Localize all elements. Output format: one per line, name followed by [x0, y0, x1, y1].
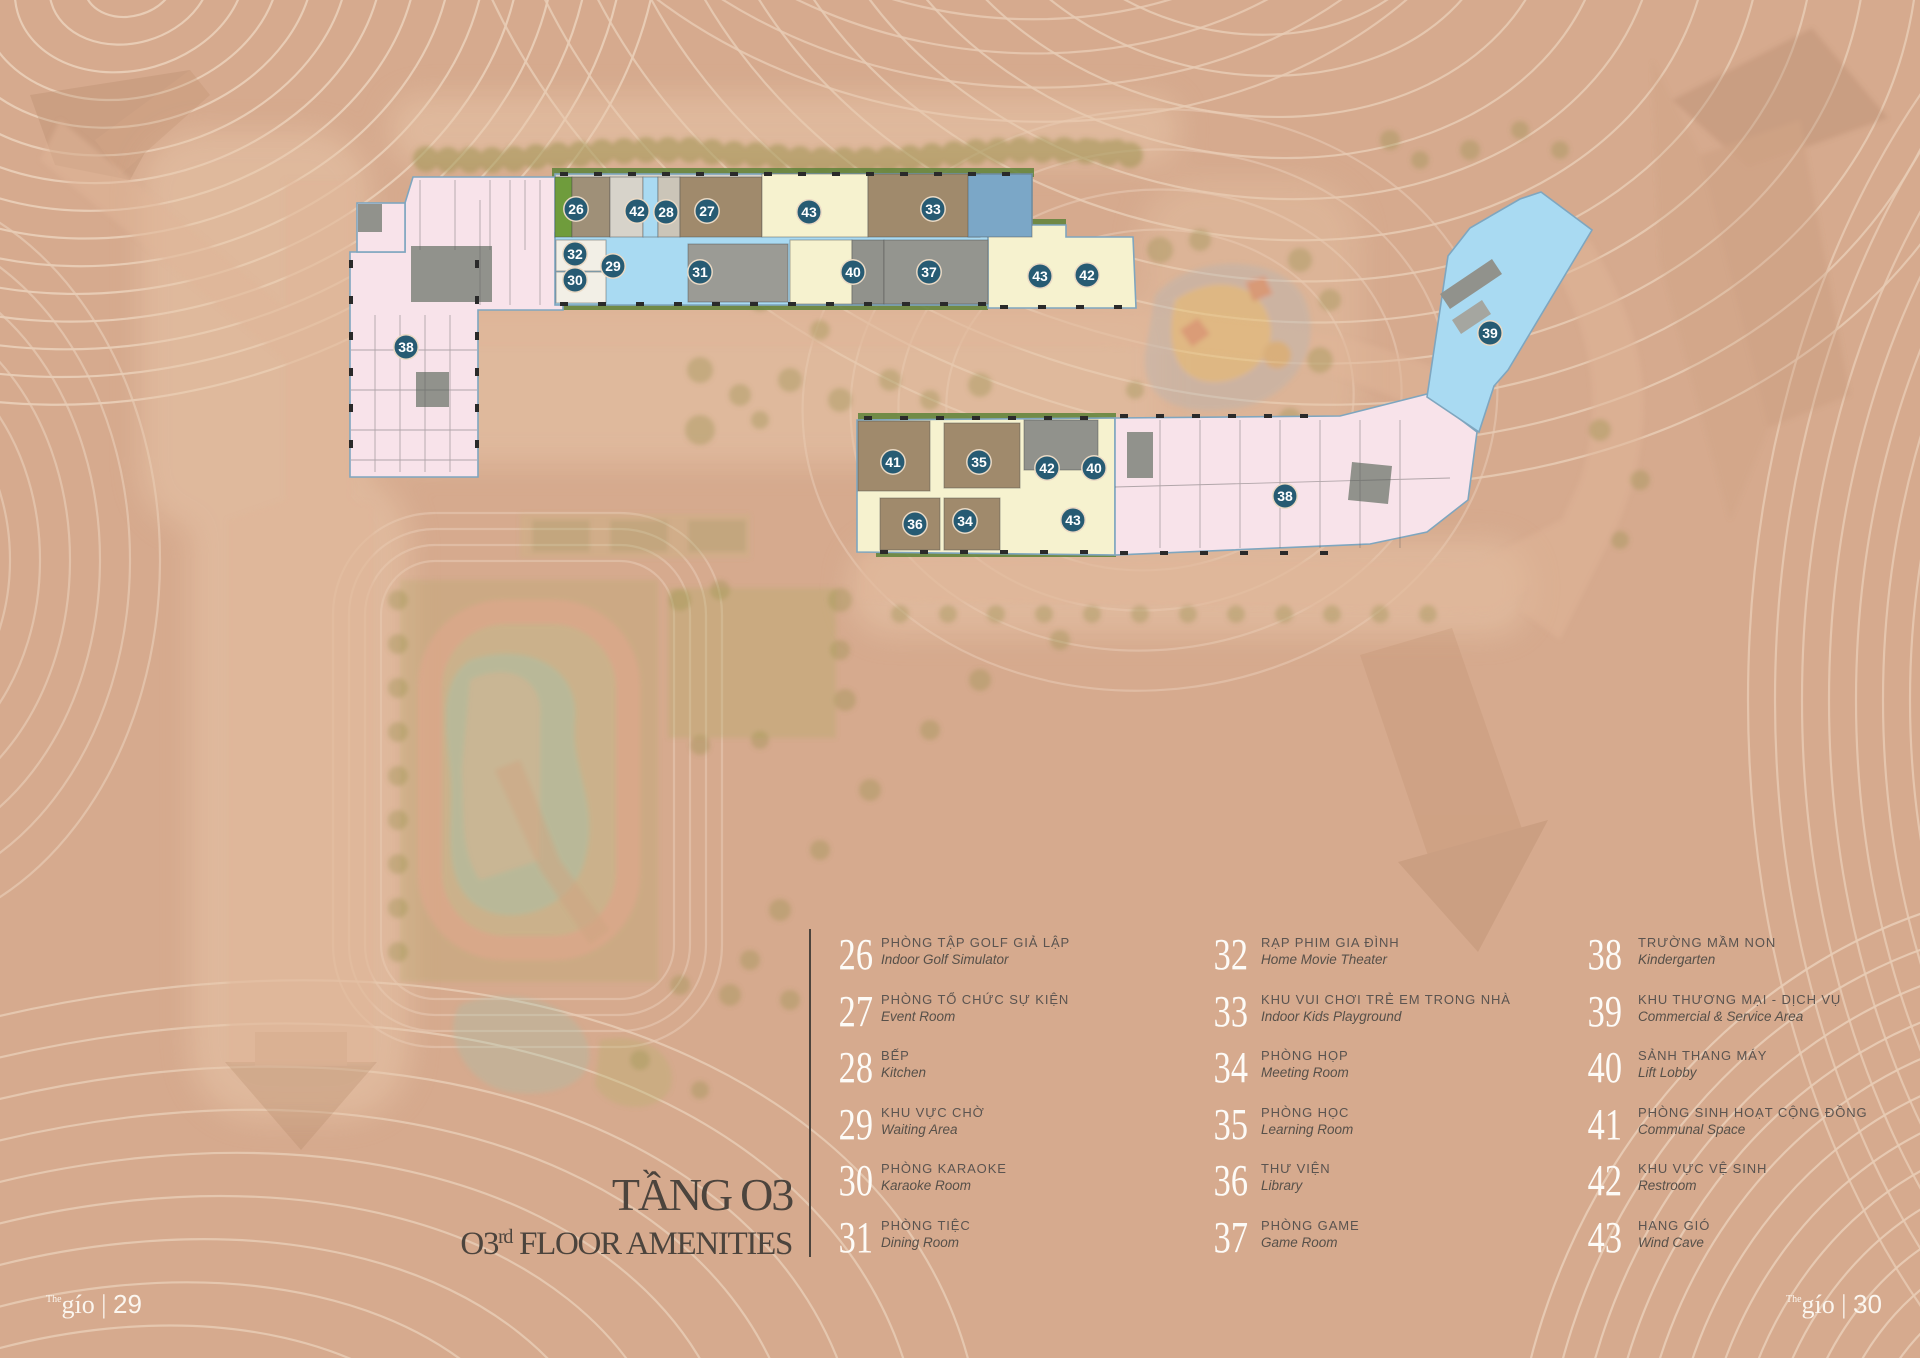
- svg-text:31: 31: [692, 264, 708, 280]
- svg-text:40: 40: [1086, 460, 1102, 476]
- svg-text:37: 37: [921, 264, 937, 280]
- svg-text:32: 32: [567, 246, 583, 262]
- svg-text:29: 29: [605, 258, 621, 274]
- svg-text:40: 40: [845, 264, 861, 280]
- svg-text:39: 39: [1482, 325, 1498, 341]
- svg-text:42: 42: [1039, 460, 1055, 476]
- svg-text:42: 42: [1079, 267, 1095, 283]
- svg-text:43: 43: [1065, 512, 1081, 528]
- svg-text:43: 43: [801, 204, 817, 220]
- svg-text:38: 38: [1277, 488, 1293, 504]
- svg-text:33: 33: [925, 201, 941, 217]
- svg-text:36: 36: [907, 516, 923, 532]
- svg-text:41: 41: [885, 454, 901, 470]
- svg-text:43: 43: [1032, 268, 1048, 284]
- svg-text:35: 35: [971, 454, 987, 470]
- svg-text:28: 28: [658, 204, 674, 220]
- svg-text:27: 27: [699, 203, 715, 219]
- svg-text:34: 34: [957, 513, 973, 529]
- svg-text:42: 42: [629, 203, 645, 219]
- svg-text:30: 30: [567, 272, 583, 288]
- svg-text:26: 26: [568, 201, 584, 217]
- svg-text:38: 38: [398, 339, 414, 355]
